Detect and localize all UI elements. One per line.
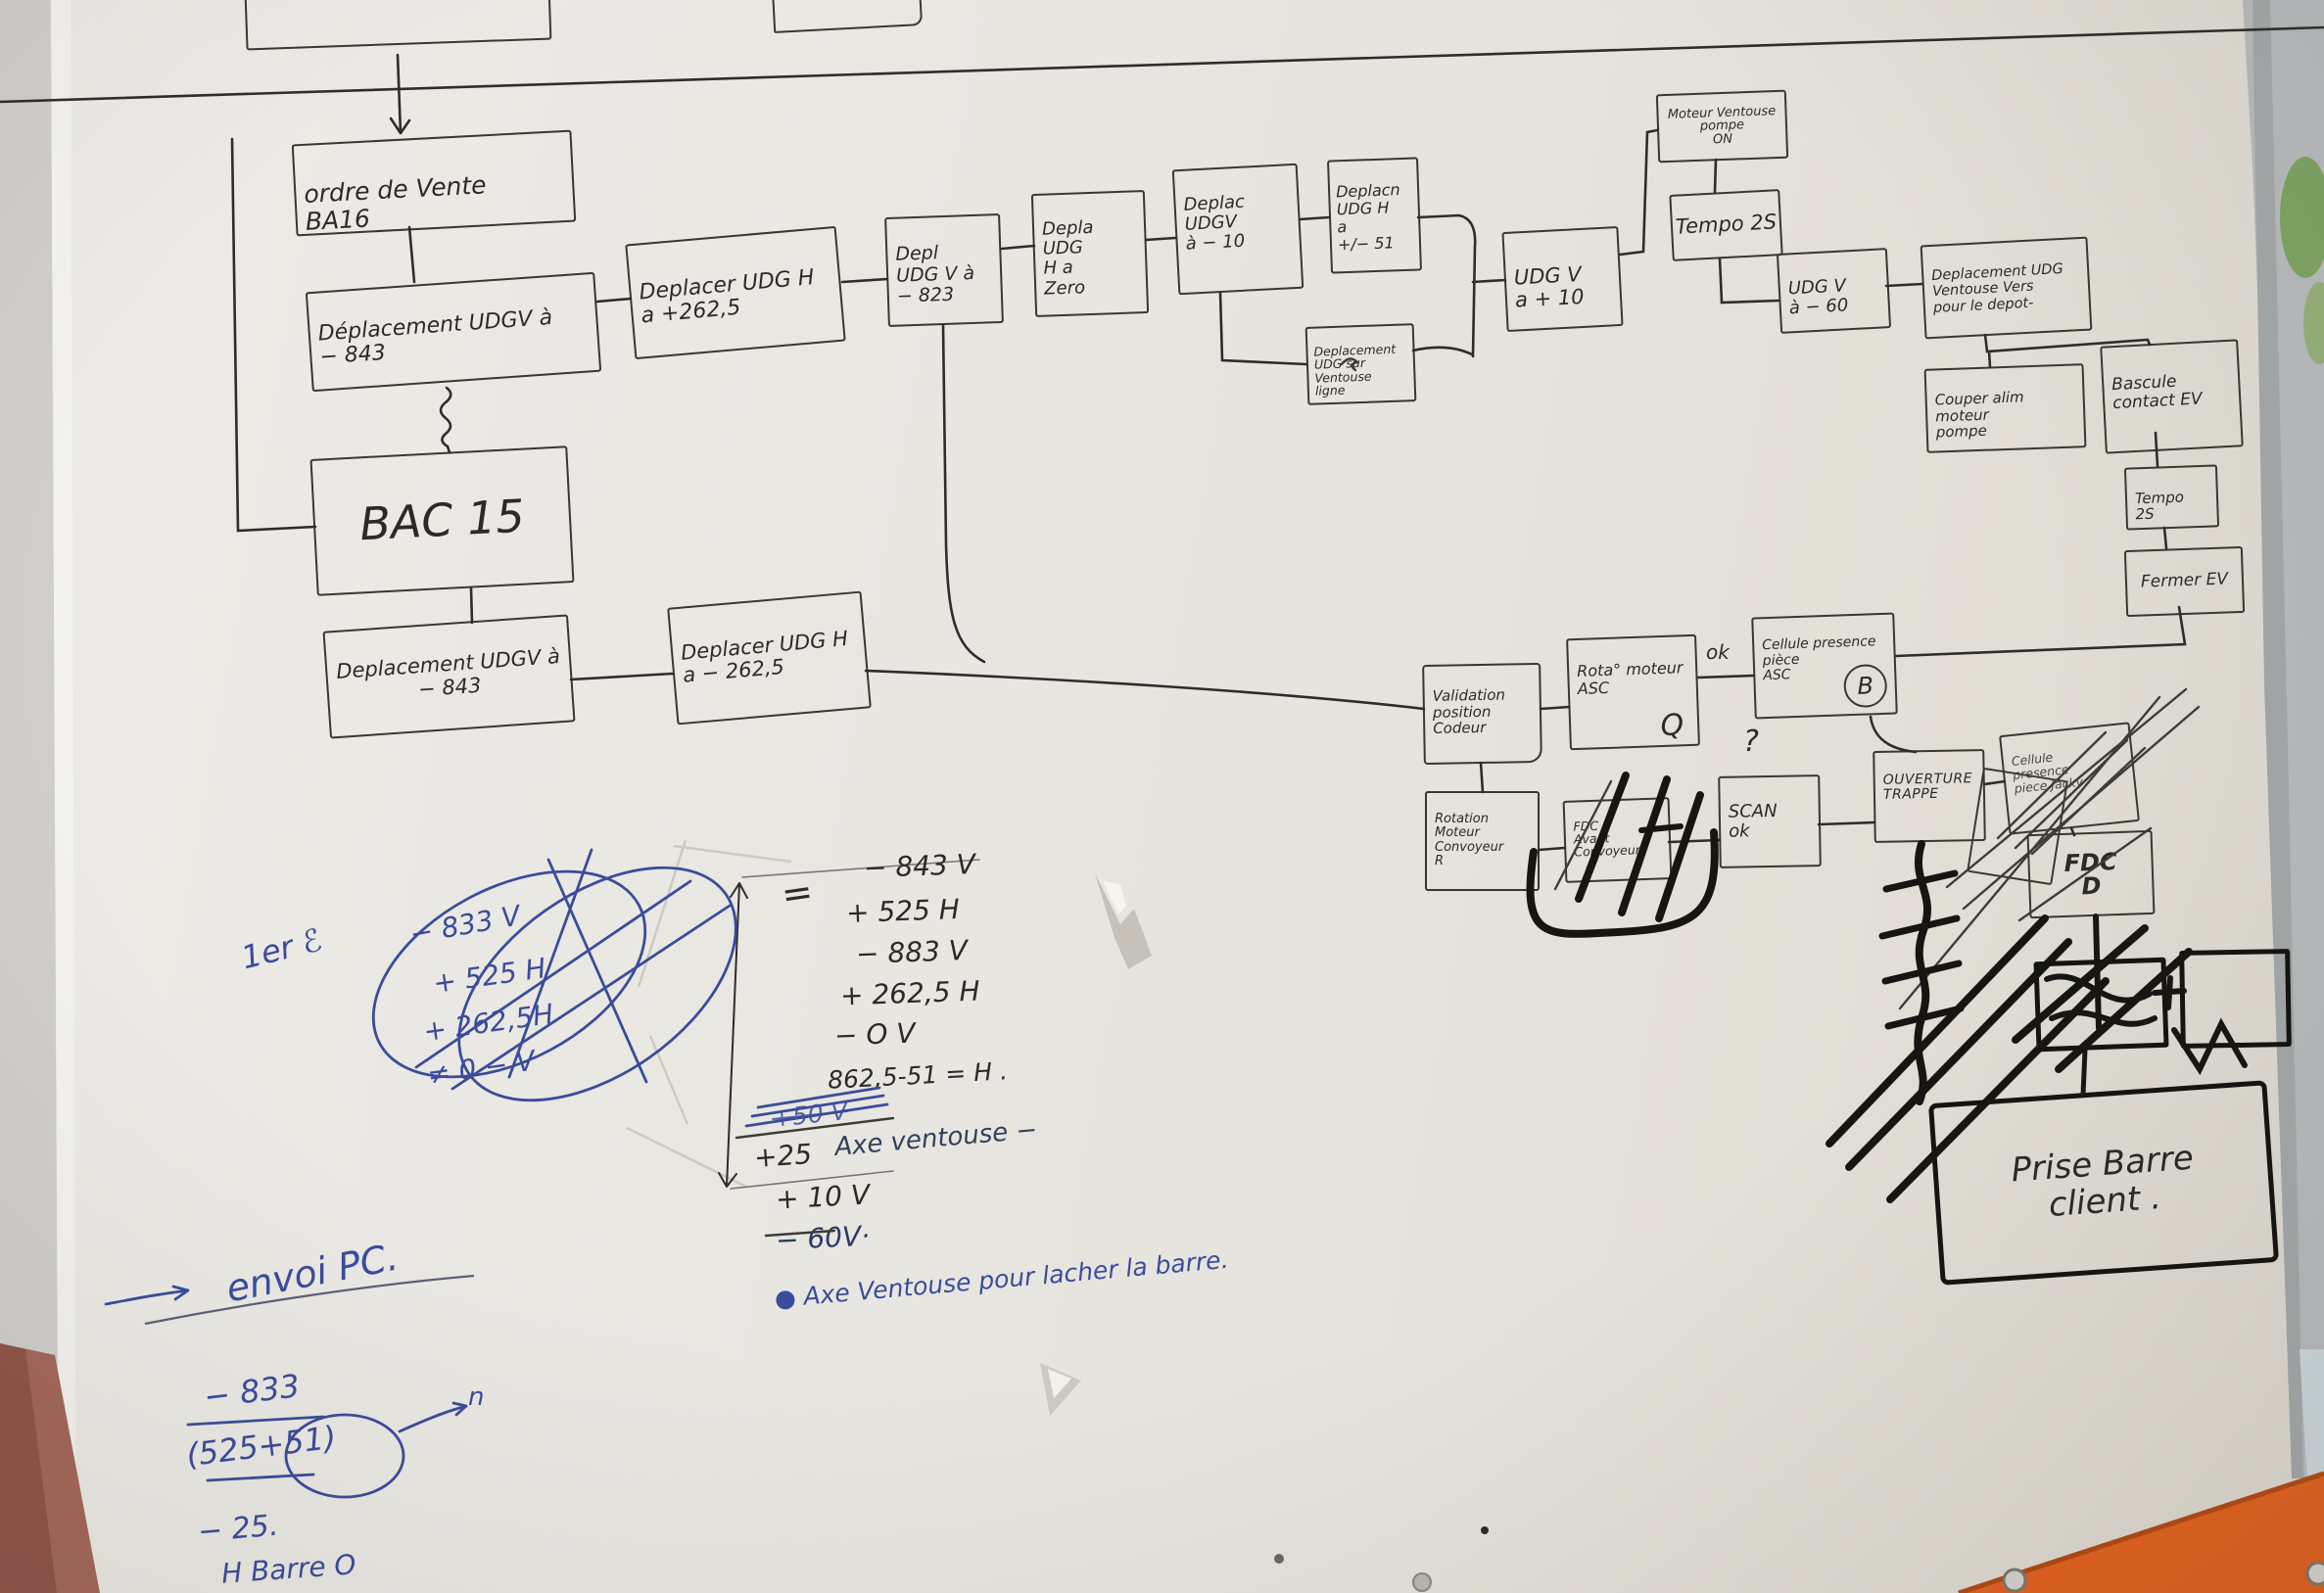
ok-label: ok	[1706, 640, 1730, 664]
arrow-to-n	[400, 1403, 466, 1431]
calc-row: − 883 V	[855, 934, 968, 970]
ouverture-trappe-box: OUVERTURE TRAPPE	[1873, 749, 1986, 843]
crossed-row: + 525 H	[431, 952, 547, 1000]
node-label: Deplac UDGV à − 10	[1183, 192, 1246, 255]
node-label: Deplacement UDG Ventouse Vers pour le de…	[1931, 261, 2063, 316]
bac-15-box: BAC 15	[310, 445, 575, 596]
right-wall-strip	[2243, 0, 2324, 1490]
orange-machine-panel	[1959, 1472, 2324, 1593]
depl-udgv-10-box: Deplac UDGV à − 10	[1172, 164, 1304, 296]
scan-ok-box: SCAN ok	[1718, 774, 1822, 868]
node-label: Deplacement UDGV à − 843	[336, 646, 563, 708]
udgv-minus-60-box: UDG V à − 60	[1777, 248, 1891, 334]
node-label: Tempo 2S	[1675, 211, 1777, 240]
rotation-moteur-convoyeur-box: Rotation Moteur Convoyeur R	[1425, 791, 1540, 891]
node-label: FDC Avant Convoyeur	[1573, 819, 1640, 860]
first-try-header: 1er ℰ	[238, 921, 325, 977]
node-label: Depl UDG V à − 823	[895, 242, 974, 306]
crossed-row: − 833 V	[407, 899, 523, 950]
calc-plus10: + 10 V	[775, 1179, 871, 1216]
paper-creases	[627, 840, 791, 1187]
calc-row: 862,5-51 = H .	[827, 1056, 1008, 1095]
node-label: Tempo 2S	[2135, 488, 2184, 523]
calc-struck-row: +50 V	[771, 1097, 849, 1133]
depl-udgv-843-row2-box: Deplacement UDGV à − 843	[322, 614, 575, 738]
circled-b-label: B	[1843, 664, 1888, 709]
crossed-bottom-box	[2033, 958, 2168, 1053]
bascule-contact-ev-box: Bascule contact EV	[2100, 339, 2244, 453]
node-label: Fermer EV	[2141, 571, 2229, 592]
crossed-row: + 262,5H	[421, 998, 555, 1048]
empty-bottom-box	[2179, 949, 2292, 1049]
depl-udgh-zero-box: Depla UDG H a Zero	[1031, 190, 1149, 317]
validation-position-codeur-box: Validation position Codeur	[1422, 663, 1542, 765]
rivet	[2307, 1563, 2324, 1584]
node-label: Deplacn UDG H a +/− 51	[1336, 180, 1400, 254]
cellule-presence-crossed-box: Cellule presence piece Jacky	[1999, 722, 2140, 834]
depl-udgh-minus-262-box: Deplacer UDG H a − 262,5	[667, 591, 872, 726]
node-label: Deplacer UDG H a − 262,5	[680, 626, 849, 686]
depl-udgh-51-box: Deplacn UDG H a +/− 51	[1327, 157, 1422, 273]
ordre-de-vente-box: ordre de Vente BA16	[292, 130, 577, 237]
node-label: ordre de Vente BA16	[304, 170, 488, 236]
span-arrow	[719, 883, 747, 1187]
exponent-n-label: n	[468, 1382, 484, 1412]
calc-plus25: +25	[753, 1138, 813, 1174]
node-label: Rotation Moteur Convoyeur R	[1435, 812, 1503, 869]
node-label: SCAN ok	[1729, 801, 1778, 842]
node-label: UDG V à − 60	[1787, 276, 1849, 319]
node-label: Bascule contact EV	[2111, 372, 2203, 413]
trappe-drop-squiggle	[1918, 844, 1927, 1101]
depl-udgv-843-top-box: Déplacement UDGV à − 843	[306, 272, 601, 392]
paper-tear	[1040, 1363, 1081, 1416]
envoi-row: H Barre O	[220, 1548, 356, 1590]
moteur-ventouse-pompe-on-box: Moteur Ventouse pompe ON	[1656, 90, 1788, 164]
rotation-moteur-asc-box: Rota° moteur ASC Q	[1566, 634, 1700, 751]
partial-top-box	[770, 0, 923, 33]
envoi-arrow	[106, 1287, 188, 1304]
paper-blemishes	[1040, 873, 1489, 1591]
calc-row: − O V	[833, 1017, 916, 1053]
fdc-d-box: FDC D	[2027, 830, 2156, 918]
depl-udgh-plus-262-box: Deplacer UDG H a +262,5	[625, 226, 845, 359]
calc-row: − 843 V	[863, 848, 975, 884]
node-label: Cellule presence piece Jacky	[2011, 750, 2084, 796]
calc-axe-note: Axe ventouse −	[833, 1115, 1038, 1162]
node-label: BAC 15	[358, 492, 526, 550]
question-mark-label: ?	[1743, 725, 1759, 759]
crossed-row: ≠ 0 − V	[425, 1044, 537, 1091]
calc-minus60: − 60V·	[775, 1220, 871, 1257]
node-label: UDG V a + 10	[1513, 262, 1585, 312]
small-hole	[1481, 1526, 1489, 1534]
envoi-row: (525+51)	[184, 1419, 338, 1474]
node-label: Depla UDG H a Zero	[1042, 217, 1094, 299]
light-blue-sliver	[2300, 1349, 2324, 1483]
depl-udg-ventouse-ligne-box: Deplacement UDG sur Ventouse ligne	[1305, 323, 1417, 405]
udgv-plus-10-box: UDG V a + 10	[1501, 226, 1623, 332]
cellule-presence-piece-asc-box: Cellule presence pièce ASC B	[1751, 612, 1898, 719]
snap-fastener	[1413, 1573, 1431, 1591]
tempo-2s-top-box: Tempo 2S	[1669, 189, 1782, 261]
rivet	[2004, 1570, 2025, 1591]
fdc-avant-convoyeur-box: FDC Avant Convoyeur	[1563, 797, 1673, 883]
motor-q-letter: Q	[1660, 710, 1684, 743]
small-dot	[1274, 1554, 1284, 1564]
release-note: ● Axe Ventouse pour lacher la barre.	[774, 1245, 1230, 1313]
prise-barre-client-box: Prise Barre client .	[1928, 1080, 2279, 1286]
node-label: Couper alim moteur pompe	[1934, 388, 2024, 442]
equals-sign: =	[779, 869, 816, 916]
calc-row: + 262,5 H	[839, 975, 980, 1012]
fermer-ev-box: Fermer EV	[2124, 546, 2245, 617]
envoi-title: envoi PC.	[222, 1235, 402, 1310]
paper-tear	[1095, 873, 1152, 969]
foliage-glimpse	[2280, 157, 2324, 278]
node-label: Deplacement UDG sur Ventouse ligne	[1313, 341, 1396, 398]
depl-udgv-823-box: Depl UDG V à − 823	[884, 213, 1004, 327]
wood-table-edge	[0, 1343, 100, 1593]
envoi-row: − 833	[202, 1367, 302, 1416]
node-label: Moteur Ventouse pompe ON	[1668, 105, 1778, 149]
left-wall-strip	[0, 0, 76, 1593]
node-label: OUVERTURE TRAPPE	[1883, 771, 1973, 803]
whiteboard-photo: ordre de Vente BA16 Déplacement UDGV à −…	[0, 0, 2324, 1593]
node-label: FDC D	[2063, 850, 2118, 899]
calc-row: + 525 H	[845, 893, 960, 929]
couper-alim-pompe-box: Couper alim moteur pompe	[1924, 363, 2087, 453]
partial-top-box	[244, 0, 552, 50]
squiggle-connector	[441, 388, 451, 452]
node-label: Validation position Codeur	[1433, 685, 1506, 737]
node-label: Deplacer UDG H a +262,5	[639, 265, 816, 329]
tempo-2s-right-box: Tempo 2S	[2124, 464, 2219, 530]
depl-udg-ventouse-depot-box: Deplacement UDG Ventouse Vers pour le de…	[1921, 237, 2093, 340]
node-label: Rota° moteur ASC	[1577, 658, 1684, 698]
envoi-row: − 25.	[197, 1508, 280, 1549]
node-label: Prise Barre client .	[2010, 1140, 2197, 1227]
node-label: Déplacement UDGV à − 843	[317, 305, 553, 370]
